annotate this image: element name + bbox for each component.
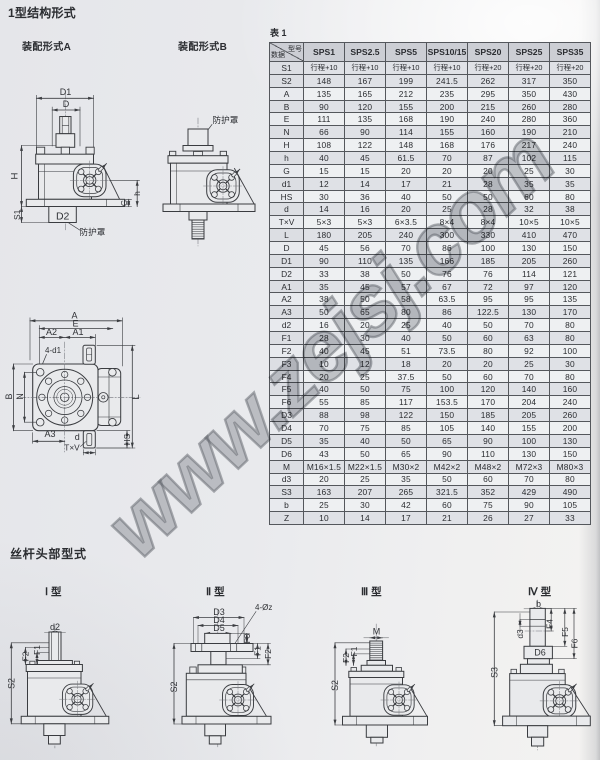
svg-text:F4: F4 xyxy=(545,619,555,629)
svg-text:S2: S2 xyxy=(330,680,340,691)
svg-text:F1: F1 xyxy=(349,646,359,656)
svg-text:S1: S1 xyxy=(12,209,22,220)
svg-text:L: L xyxy=(131,394,142,399)
svg-text:F1: F1 xyxy=(32,645,42,655)
svg-text:G: G xyxy=(120,200,129,206)
svg-text:F2: F2 xyxy=(21,651,31,661)
svg-text:d: d xyxy=(75,432,80,442)
svg-text:F5: F5 xyxy=(560,627,570,637)
svg-text:F1: F1 xyxy=(253,646,263,656)
svg-text:d2: d2 xyxy=(50,622,60,632)
svg-text:D2: D2 xyxy=(56,211,70,223)
svg-text:HS: HS xyxy=(122,433,132,445)
svg-text:防护罩: 防护罩 xyxy=(213,114,239,125)
svg-text:S2: S2 xyxy=(7,678,17,689)
svg-text:4-Øz: 4-Øz xyxy=(255,603,272,612)
svg-text:S2: S2 xyxy=(169,682,179,693)
svg-text:A2: A2 xyxy=(46,327,57,337)
svg-text:F3: F3 xyxy=(242,633,252,643)
svg-text:S3: S3 xyxy=(489,667,499,678)
svg-text:A1: A1 xyxy=(72,327,83,337)
svg-text:T×V: T×V xyxy=(64,443,80,453)
svg-text:D1: D1 xyxy=(60,87,72,97)
svg-text:d3: d3 xyxy=(515,629,525,639)
svg-text:A3: A3 xyxy=(44,429,55,439)
svg-text:b: b xyxy=(536,599,541,609)
svg-text:D5: D5 xyxy=(213,623,225,633)
svg-text:F6: F6 xyxy=(569,638,579,648)
svg-text:D6: D6 xyxy=(534,647,546,657)
svg-text:F2: F2 xyxy=(263,649,273,659)
svg-text:M: M xyxy=(373,626,381,636)
svg-text:D: D xyxy=(63,99,70,109)
svg-text:B: B xyxy=(4,393,14,399)
svg-text:N: N xyxy=(15,393,25,400)
svg-text:防护罩: 防护罩 xyxy=(80,226,106,237)
svg-text:H: H xyxy=(10,172,21,179)
svg-text:h: h xyxy=(132,191,142,196)
svg-text:4-d1: 4-d1 xyxy=(45,346,62,355)
